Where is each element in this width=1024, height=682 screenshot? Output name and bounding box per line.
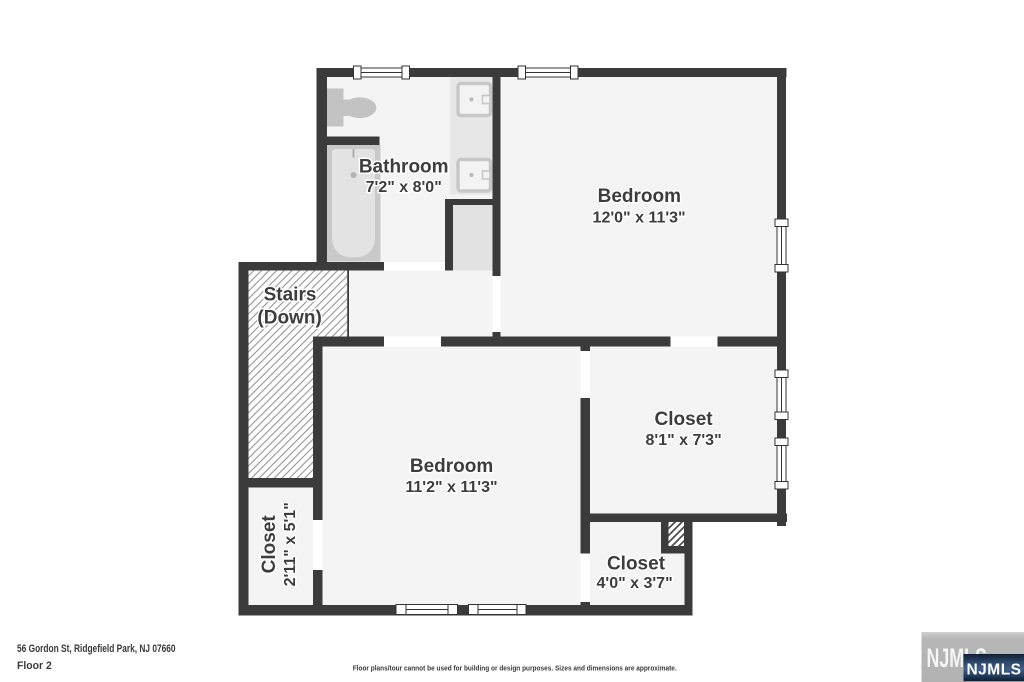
svg-text:Floor 2: Floor 2 [17,660,52,672]
svg-text:12'0" x 11'3": 12'0" x 11'3" [593,209,686,226]
svg-text:Bedroom: Bedroom [410,456,493,477]
svg-text:4'0" x 3'7": 4'0" x 3'7" [597,575,673,592]
svg-text:8'1" x 7'3": 8'1" x 7'3" [646,432,722,449]
svg-text:Bedroom: Bedroom [598,186,681,207]
svg-text:Bathroom: Bathroom [359,156,449,177]
svg-text:NJMLS: NJMLS [966,661,1021,678]
svg-text:Closet: Closet [607,554,666,575]
svg-text:Floor plans/tour cannot be use: Floor plans/tour cannot be used for buil… [353,665,677,672]
svg-text:Closet: Closet [655,409,714,430]
svg-text:Closet: Closet [259,515,280,574]
svg-text:56 Gordon St, Ridgefield Park,: 56 Gordon St, Ridgefield Park, NJ 07660 [17,643,176,655]
svg-text:(Down): (Down) [257,307,321,328]
svg-text:2'11" x 5'1": 2'11" x 5'1" [282,502,299,586]
svg-text:7'2" x 8'0": 7'2" x 8'0" [366,179,442,196]
svg-text:11'2" x 11'3": 11'2" x 11'3" [405,479,497,496]
svg-text:Stairs: Stairs [264,284,317,305]
